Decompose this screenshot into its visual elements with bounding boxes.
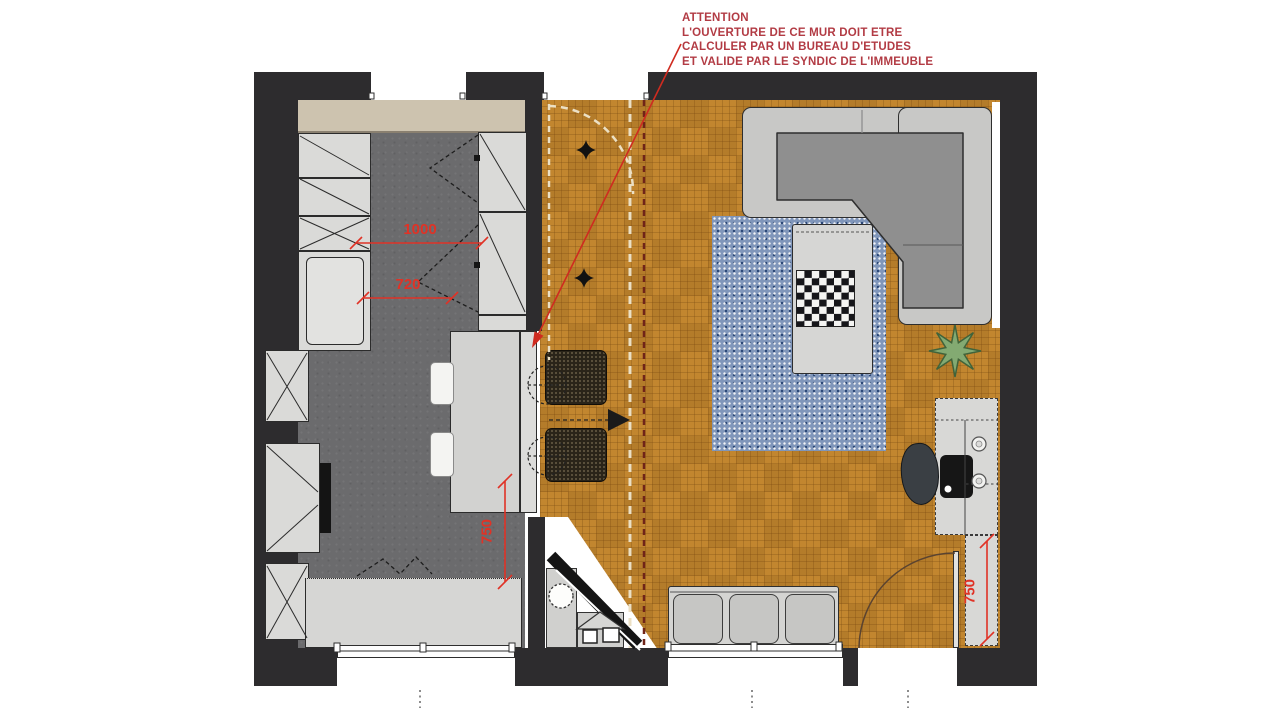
cabinet-door-lines: [267, 134, 525, 638]
entry-unit-drawer-2: [603, 628, 619, 642]
annotation-line-3: CALCULER PAR UN BUREAU D'ETUDES: [682, 40, 933, 55]
dimension-label-750-kitchen: 750: [479, 506, 496, 558]
window-mullion-ticks: [334, 93, 842, 652]
dimension-label-750-right: 750: [962, 566, 979, 618]
axis-reference-dots: [420, 690, 908, 708]
dashed-chair-circles: [528, 366, 566, 475]
entry-diagonal-gap: [556, 570, 640, 650]
annotation-line-4: ET VALIDE PAR LE SYNDIC DE L'IMMEUBLE: [682, 55, 933, 70]
entry-door-swing-arc: [859, 553, 955, 648]
linework-overlay: [0, 0, 1280, 709]
shrub-icon: [549, 584, 573, 608]
sparkle-light-icon: [574, 268, 594, 288]
entry-unit-drawer-1: [583, 630, 597, 643]
floor-plan-canvas: ATTENTION L'OUVERTURE DE CE MUR DOIT ETR…: [0, 0, 1280, 709]
dimension-label-1000: 1000: [394, 221, 446, 238]
attention-annotation: ATTENTION L'OUVERTURE DE CE MUR DOIT ETR…: [682, 11, 933, 69]
annotation-line-2: L'OUVERTURE DE CE MUR DOIT ETRE: [682, 26, 933, 41]
desk-cups: [972, 437, 986, 488]
dimension-label-720: 720: [385, 276, 431, 293]
dimension-lines: [350, 237, 994, 646]
plant-icon: [929, 325, 981, 377]
cabinet-handles: [474, 155, 480, 268]
annotation-line-1: ATTENTION: [682, 11, 933, 26]
leader-line: [535, 44, 681, 341]
sofa-seat-cushions: [777, 133, 963, 308]
laptop-logo-dot: [945, 486, 952, 493]
leader-arrow-icon: [532, 331, 544, 348]
door-swing-zigzags: [357, 135, 478, 576]
sparkle-light-icon: [576, 140, 596, 160]
view-direction-arrow-icon: [608, 409, 630, 431]
